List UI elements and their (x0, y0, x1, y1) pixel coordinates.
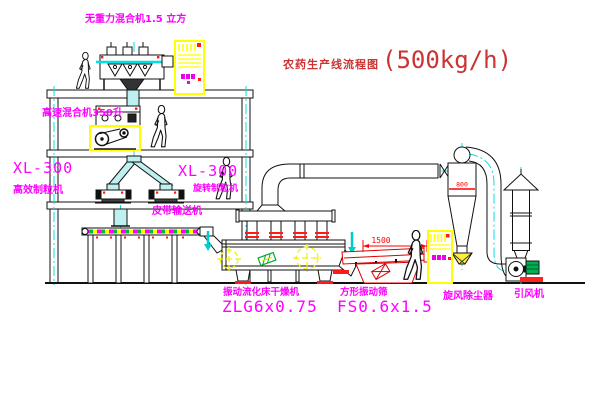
person-second-floor (151, 105, 167, 146)
label-belt-conveyor: 皮带输送机 (152, 207, 202, 217)
label-gravity-free-mixer: 无重力混合机1.5 立方 (85, 15, 186, 25)
induced-draft-fan (506, 258, 543, 282)
belt-conveyor (82, 228, 204, 283)
label-granulator-left-model: XL-300 (13, 161, 73, 176)
label-granulator-mid-name: 旋转制粒机 (193, 185, 238, 194)
high-speed-mixer (90, 90, 140, 150)
process-flow-diagram: 1500 541 800 (0, 0, 600, 403)
diagram-title: 农药生产线流程图 (500kg/h) (283, 46, 512, 74)
label-granulator-left-name: 高效制粒机 (13, 186, 63, 196)
exhaust-stack (504, 169, 538, 258)
control-cabinet-top (175, 41, 204, 94)
exhaust-duct (257, 164, 449, 211)
person-top-floor (76, 52, 90, 88)
drop-pipe (111, 209, 130, 226)
title-capacity: (500kg/h) (382, 46, 512, 74)
fluidized-bed-dryer (222, 210, 357, 284)
label-high-speed-mixer: 高速混合机350升 (42, 109, 123, 119)
granulator-left (95, 184, 131, 203)
label-fan: 引风机 (514, 290, 544, 300)
label-cyclone: 旋风除尘器 (443, 292, 493, 302)
cyclone-dia-dim: 800 (456, 181, 468, 189)
label-dryer-model: ZLG6x0.75 (222, 299, 318, 315)
screen-length-dim: 1500 (371, 236, 390, 245)
label-granulator-mid-model: XL-300 (178, 164, 238, 179)
title-text: 农药生产线流程图 (283, 56, 379, 72)
label-screen-model: FS0.6x1.5 (337, 299, 433, 315)
granulator-right (148, 184, 184, 203)
control-cabinet-right (428, 231, 452, 283)
y-branch-pipe (108, 156, 172, 185)
